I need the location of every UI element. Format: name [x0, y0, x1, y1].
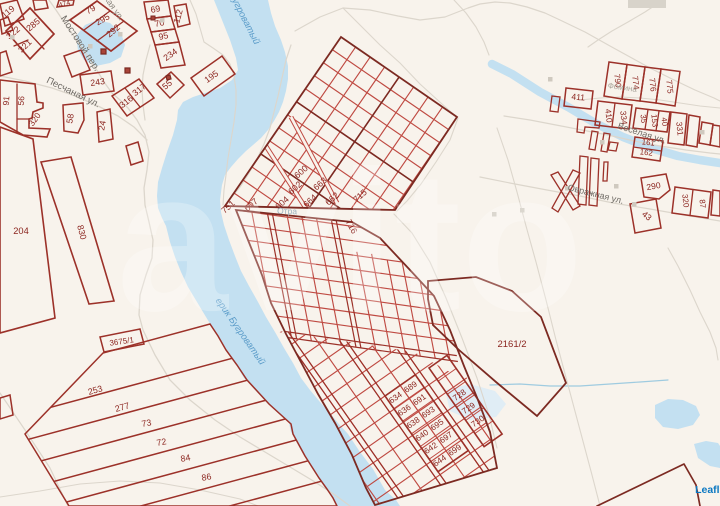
svg-text:24: 24	[96, 120, 108, 131]
svg-text:35: 35	[639, 114, 649, 124]
svg-text:87: 87	[698, 199, 708, 209]
svg-text:84: 84	[180, 452, 191, 464]
svg-text:410: 410	[603, 108, 614, 123]
svg-text:776: 776	[647, 77, 658, 92]
svg-text:58: 58	[64, 113, 76, 124]
svg-text:56: 56	[16, 95, 27, 106]
svg-text:775: 775	[664, 79, 675, 94]
svg-text:204: 204	[13, 226, 29, 236]
svg-text:411: 411	[571, 91, 586, 102]
svg-text:320: 320	[680, 194, 690, 209]
svg-text:331: 331	[674, 121, 685, 136]
svg-text:73: 73	[141, 417, 152, 429]
svg-text:72: 72	[156, 436, 167, 448]
svg-text:153: 153	[649, 114, 659, 128]
svg-text:86: 86	[201, 471, 212, 483]
svg-text:91: 91	[1, 95, 12, 106]
svg-text:40: 40	[660, 117, 670, 127]
svg-text:243: 243	[90, 76, 106, 88]
svg-text:Leaflet: Leaflet	[695, 484, 720, 496]
svg-text:avito: avito	[117, 130, 584, 353]
svg-text:162: 162	[639, 147, 653, 158]
